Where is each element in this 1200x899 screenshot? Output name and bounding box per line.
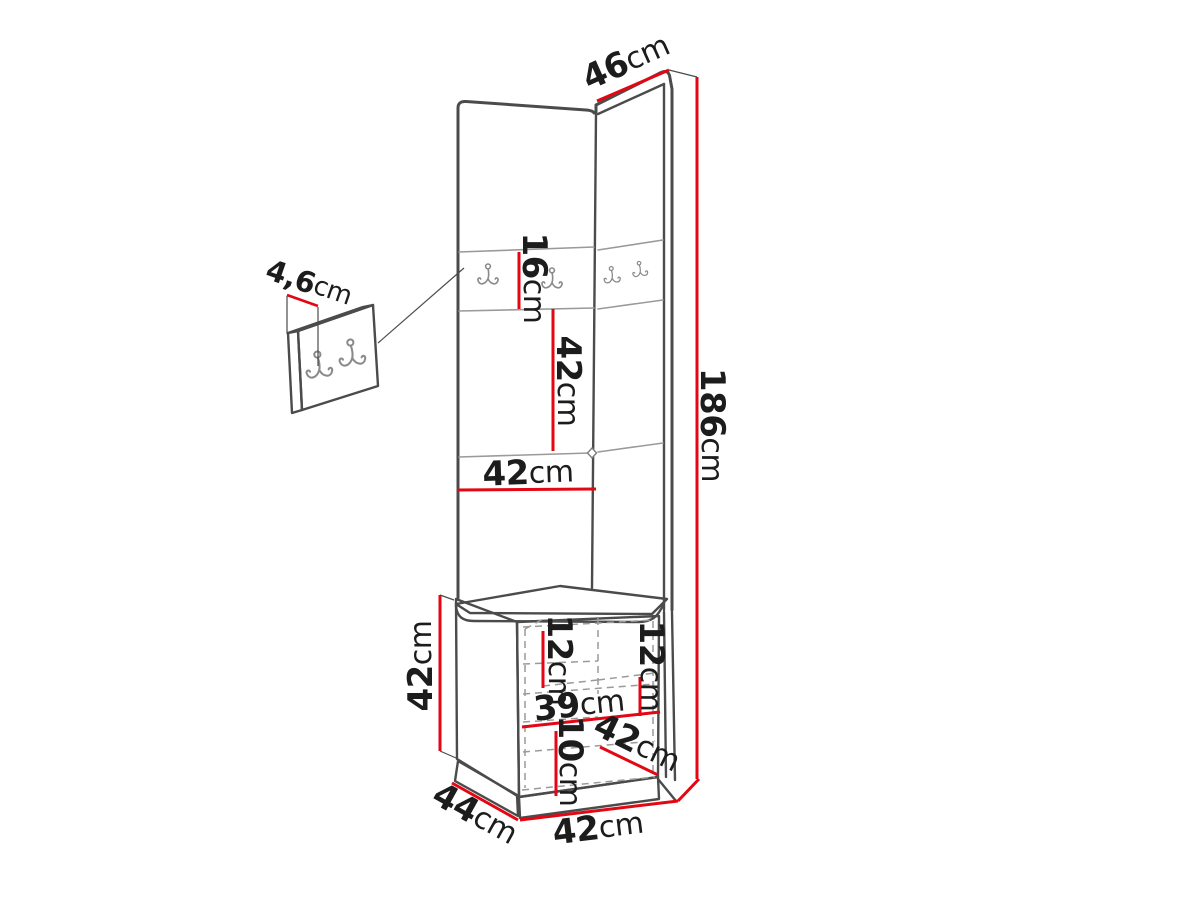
label-bench-depth: 42cm [587,705,686,781]
seam-button-diamond [588,448,597,458]
dim-ticks-bench-height [440,595,456,758]
label-base-depth: 44cm [425,774,524,853]
bench-left-side-panel [456,599,519,797]
label-bench-height: 42cm [401,620,441,711]
dimension-labels: 46cm 4,6cm 16cm 42cm 42cm 186cm 42cm 12c… [262,25,732,853]
label-wall-panel-thickness: 4,6cm [262,253,357,314]
double-coat-hook-icon [631,261,648,277]
diagram-canvas: 46cm 4,6cm 16cm 42cm 42cm 186cm 42cm 12c… [0,0,1200,899]
base-right-edge [658,779,676,801]
right-panel-outline [596,72,672,610]
label-middle-section-height: 42cm [548,335,588,426]
detail-panel-side-face [288,331,302,413]
label-panel-width: 42cm [482,451,574,494]
right-panel-seam-1 [598,240,663,250]
double-coat-hook-icon [478,264,498,284]
double-coat-hook-icon [603,266,620,283]
right-panel-seam-3 [598,443,663,452]
label-hook-row-height: 16cm [514,232,554,323]
furniture-dimension-diagram: 46cm 4,6cm 16cm 42cm 42cm 186cm 42cm 12c… [0,0,1200,899]
detail-panel-top-face [288,305,373,333]
panel-corner-edge [592,113,596,588]
detail-leader-line [378,268,464,343]
dim-line-base-right [678,779,699,801]
label-total-height: 186cm [692,368,732,482]
dim-extension-total-height [669,70,697,77]
double-coat-hook-icon [337,338,366,366]
label-bench-right-shelf: 12cm [631,620,671,711]
label-bench-bottom-gap: 10cm [550,715,590,806]
label-bench-width: 42cm [550,803,645,854]
right-panel-seam-2 [598,300,663,309]
